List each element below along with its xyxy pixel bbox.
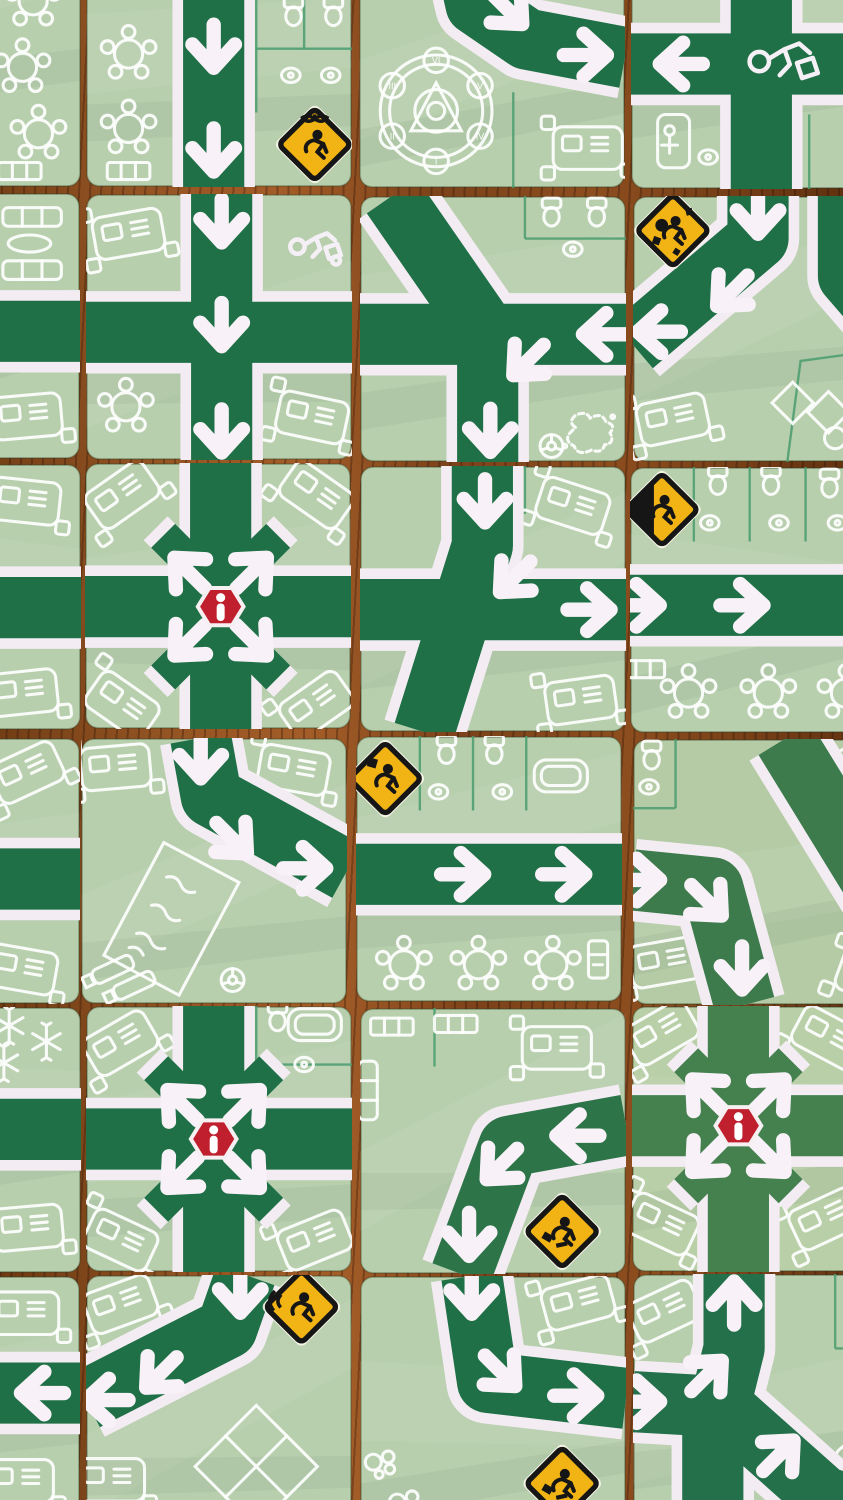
board-tile [633,196,843,462]
board-tile [86,1275,352,1500]
info-sign-icon [191,1120,237,1157]
board-tile [0,464,81,730]
board-tile [630,467,843,733]
board-tile [81,738,347,1004]
board-tile [632,1006,843,1272]
svg-text:I: I [435,157,438,167]
info-sign-icon [198,588,244,625]
board-tile [633,739,843,1005]
svg-text:II: II [390,131,395,141]
game-board: VIVIVIIIIII [0,0,843,1500]
board-tile [0,1276,80,1500]
board-tile [0,1007,81,1273]
board-tile [631,0,843,189]
info-sign-icon [716,1107,762,1144]
board-tile [633,1274,843,1500]
board-tile [0,0,81,187]
svg-text:V: V [477,81,483,91]
board-tile [360,466,626,732]
board-tile [0,738,80,1004]
board-tile [86,0,352,187]
board-tile: VIVIVIIIIII [359,0,625,188]
board-tile [0,193,80,459]
board-tile [86,1006,352,1272]
board-tile [360,1276,626,1500]
board-tile [360,1008,626,1274]
svg-text:VI: VI [432,56,441,66]
board-tile [85,463,351,729]
board-tile [356,736,622,1002]
svg-text:IV: IV [476,131,485,141]
svg-text:III: III [388,81,396,91]
board-tile [360,196,626,462]
board-tile [86,194,352,460]
